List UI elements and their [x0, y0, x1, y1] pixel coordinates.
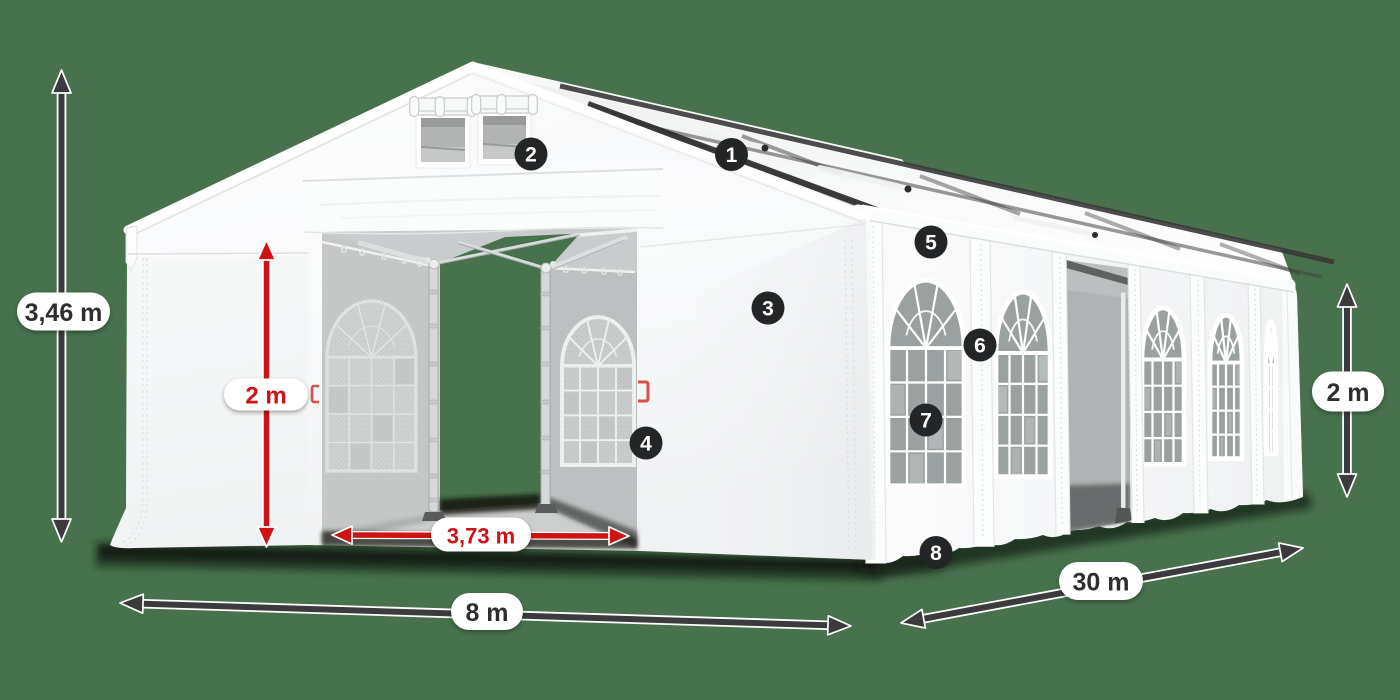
svg-text:5: 5 — [925, 232, 937, 255]
svg-text:1: 1 — [726, 144, 738, 167]
svg-text:3,46 m: 3,46 m — [25, 299, 103, 327]
svg-text:2: 2 — [525, 144, 537, 167]
svg-text:6: 6 — [974, 335, 986, 358]
svg-text:30 m: 30 m — [1073, 569, 1130, 597]
svg-text:7: 7 — [920, 410, 932, 433]
svg-text:8 m: 8 m — [465, 599, 508, 627]
svg-text:3: 3 — [762, 298, 774, 321]
svg-text:8: 8 — [930, 542, 942, 565]
svg-text:2 m: 2 m — [1326, 379, 1369, 407]
svg-text:3,73 m: 3,73 m — [447, 524, 516, 549]
svg-text:2 m: 2 m — [245, 383, 286, 410]
svg-text:4: 4 — [640, 433, 652, 456]
